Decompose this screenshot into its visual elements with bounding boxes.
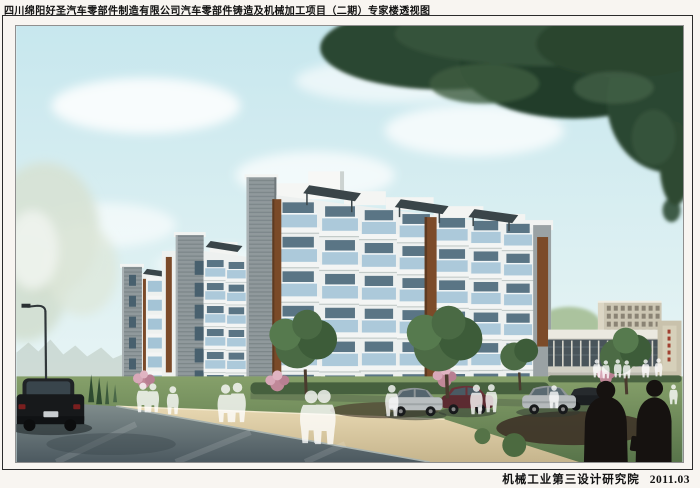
apartment-building-left [162,232,249,396]
round-bush-2 [474,428,490,444]
perspective-rendering [16,26,683,462]
sheet-date: 2011.03 [650,474,690,486]
rendering-image [15,25,684,463]
tree-shadow-road [46,433,175,455]
round-bush [502,433,526,457]
institute-name: 机械工业第三设计研究院 [502,474,640,486]
sheet-caption: 机械工业第三设计研究院2011.03 [502,471,690,487]
drawing-sheet: 四川绵阳好圣汽车零部件制造有限公司汽车零部件铸造及机械加工项目（二期）专家楼透视… [0,0,700,488]
